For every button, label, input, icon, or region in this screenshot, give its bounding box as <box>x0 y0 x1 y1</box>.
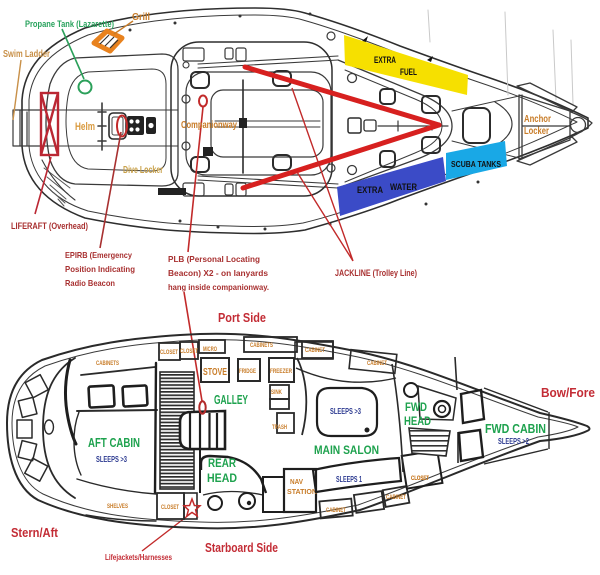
svg-text:Lifejackets/Harnesses: Lifejackets/Harnesses <box>105 553 172 562</box>
svg-text:Locker: Locker <box>524 125 549 137</box>
svg-text:EXTRA: EXTRA <box>357 185 383 196</box>
svg-text:CABINET: CABINET <box>326 507 346 514</box>
svg-text:CABINET: CABINET <box>386 494 406 501</box>
svg-text:TRASH: TRASH <box>272 424 287 431</box>
svg-text:CABINETS: CABINETS <box>96 360 119 367</box>
svg-text:Stern/Aft: Stern/Aft <box>11 525 59 540</box>
svg-text:FUEL: FUEL <box>400 67 417 77</box>
svg-text:Bow/Fore: Bow/Fore <box>541 385 595 400</box>
svg-text:CABINET: CABINET <box>305 347 325 354</box>
svg-text:FWD: FWD <box>405 400 427 414</box>
svg-text:AFT CABIN: AFT CABIN <box>88 436 140 450</box>
svg-text:EPIRB (Emergency: EPIRB (Emergency <box>65 250 132 260</box>
svg-text:EXTRA: EXTRA <box>374 55 396 65</box>
svg-text:LIFERAFT (Overhead): LIFERAFT (Overhead) <box>11 221 88 232</box>
svg-text:Dive Locker: Dive Locker <box>123 165 163 176</box>
svg-text:CLOSET: CLOSET <box>160 349 178 356</box>
svg-text:SHELVES: SHELVES <box>107 503 128 510</box>
svg-text:PLB (Personal Locating: PLB (Personal Locating <box>168 254 260 264</box>
svg-text:Radio Beacon: Radio Beacon <box>65 278 115 288</box>
svg-text:NAV: NAV <box>290 477 303 486</box>
svg-text:Swim Ladder: Swim Ladder <box>3 49 50 60</box>
svg-text:CLOSET: CLOSET <box>161 504 179 511</box>
svg-text:SLEEPS 1: SLEEPS 1 <box>336 475 362 484</box>
svg-text:HEAD: HEAD <box>404 414 431 428</box>
svg-text:CLOSET: CLOSET <box>180 348 198 355</box>
svg-text:Anchor: Anchor <box>524 113 551 125</box>
svg-text:STOVE: STOVE <box>203 367 227 378</box>
svg-text:JACKLINE (Trolley Line): JACKLINE (Trolley Line) <box>335 268 417 278</box>
svg-text:Propane Tank (Lazarette): Propane Tank (Lazarette) <box>25 19 114 30</box>
svg-text:REAR: REAR <box>208 458 237 470</box>
svg-text:SLEEPS >3: SLEEPS >3 <box>330 407 361 416</box>
svg-text:GALLEY: GALLEY <box>214 393 248 407</box>
svg-text:WATER: WATER <box>390 182 417 193</box>
svg-text:SINK: SINK <box>271 389 282 396</box>
svg-text:hang inside companionway.: hang inside companionway. <box>168 282 269 292</box>
svg-text:Helm: Helm <box>75 121 95 133</box>
svg-text:FREEZER: FREEZER <box>270 368 292 375</box>
svg-text:SCUBA TANKS: SCUBA TANKS <box>451 159 501 169</box>
svg-text:FRIDGE: FRIDGE <box>239 368 256 375</box>
svg-text:Beacon) X2 - on lanyards: Beacon) X2 - on lanyards <box>168 268 268 278</box>
svg-text:MICRO: MICRO <box>203 346 217 353</box>
svg-text:CLOSET: CLOSET <box>411 475 429 482</box>
svg-text:STATION: STATION <box>287 487 317 496</box>
svg-text:Port Side: Port Side <box>218 310 266 325</box>
svg-text:SLEEPS >2: SLEEPS >2 <box>498 437 529 446</box>
svg-text:FWD CABIN: FWD CABIN <box>485 422 546 436</box>
svg-text:SLEEPS >3: SLEEPS >3 <box>96 455 127 464</box>
svg-text:CABINET: CABINET <box>367 360 387 367</box>
svg-text:HEAD: HEAD <box>207 473 237 485</box>
svg-text:Position Indicating: Position Indicating <box>65 264 135 274</box>
svg-text:CABINETS: CABINETS <box>250 342 273 349</box>
svg-text:Starboard Side: Starboard Side <box>205 540 278 555</box>
svg-text:MAIN SALON: MAIN SALON <box>314 443 379 457</box>
svg-text:Companionway: Companionway <box>181 120 237 131</box>
svg-text:Grill: Grill <box>132 12 150 23</box>
